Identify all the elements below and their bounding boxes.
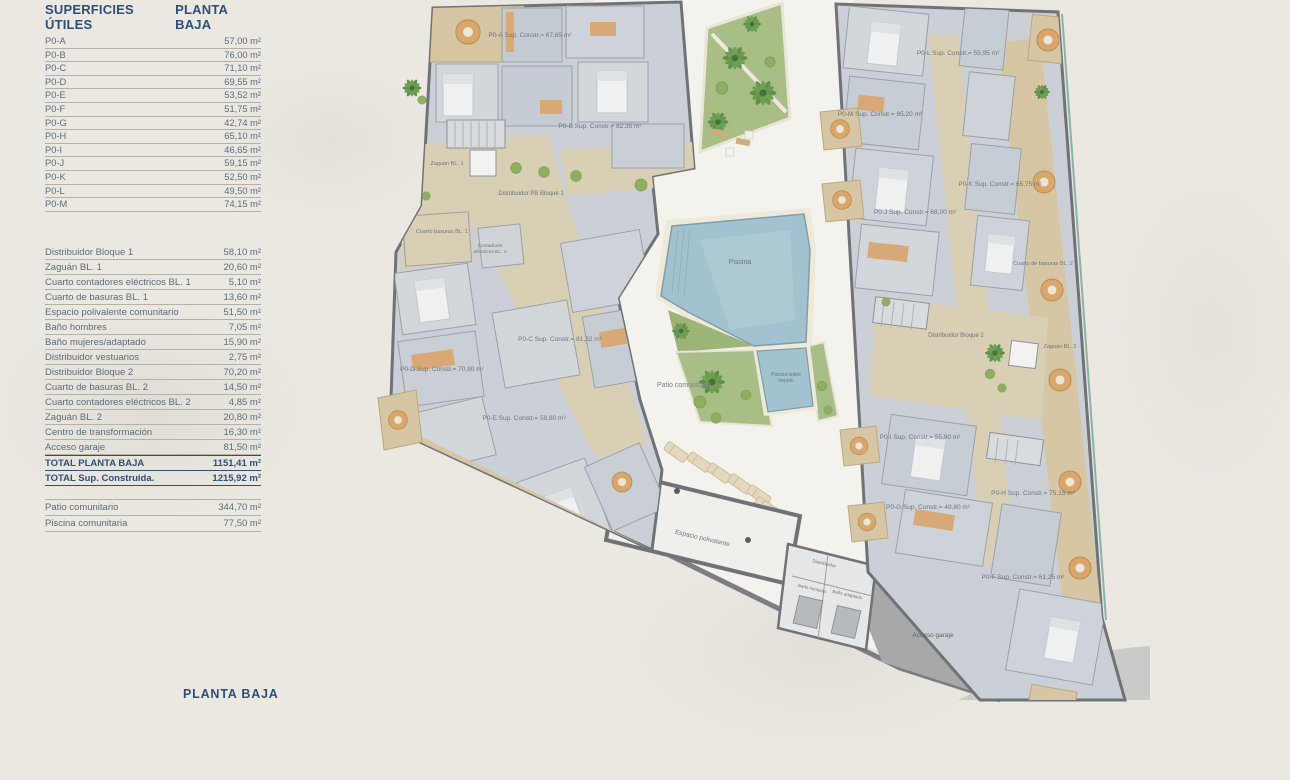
garage-label: Acceso garaje [912,632,954,639]
apartment-label: P0-K Sup. Constr.= 65,75 m² [958,181,1042,188]
apartment-label: P0-J Sup. Constr.= 68,00 m² [874,209,957,216]
apartment-label: P0-C Sup. Constr.= 81,32 m² [518,336,602,343]
apartment-label: P0-B Sup. Constr.= 82,35 m² [558,123,642,130]
apartment-label: P0-M Sup. Constr.= 85,20 m² [838,111,923,118]
apartment-label: P0-D Sup. Constr.= 70,90 m² [400,366,484,373]
room-label: Distribuidor PB Bloque 1 [498,191,564,197]
room-label: Contadores [478,243,503,249]
kids-pool-label: forjado [778,378,794,384]
room-label: Distribuidor Bloque 2 [928,333,984,339]
room-label: Zaguán BL. 1 [430,161,463,167]
apartment-label: P0-L Sup. Constr.= 55,95 m² [917,50,1000,57]
apartment-label: P0-A Sup. Constr.= 67,65 m² [489,32,573,39]
room-label: eléctricos BL. 1 [474,249,507,255]
room-label: Cuarto de basuras BL. 2 [1013,261,1073,267]
apartment-label: P0-F Sup. Constr.= 61,25 m² [982,574,1066,581]
patio-label: Patio comunitario [657,382,711,389]
room-label: Cuarto basuras BL. 1 [416,229,468,235]
room-label: Zaguán BL. 2 [1043,344,1076,350]
apartment-label: P0-G Sup. Constr.= 49,80 m² [886,504,971,511]
apartment-label: P0-H Sup. Constr.= 75,15 m² [991,490,1075,497]
apartment-label: P0-I Sup. Constr.= 55,90 m² [880,434,962,441]
pool-label: Piscina [729,259,752,266]
floor-plan: P0-A Sup. Constr.= 67,65 m² P0-B Sup. Co… [0,0,1290,727]
apartment-label: P0-E Sup. Constr.= 59,80 m² [482,415,566,422]
